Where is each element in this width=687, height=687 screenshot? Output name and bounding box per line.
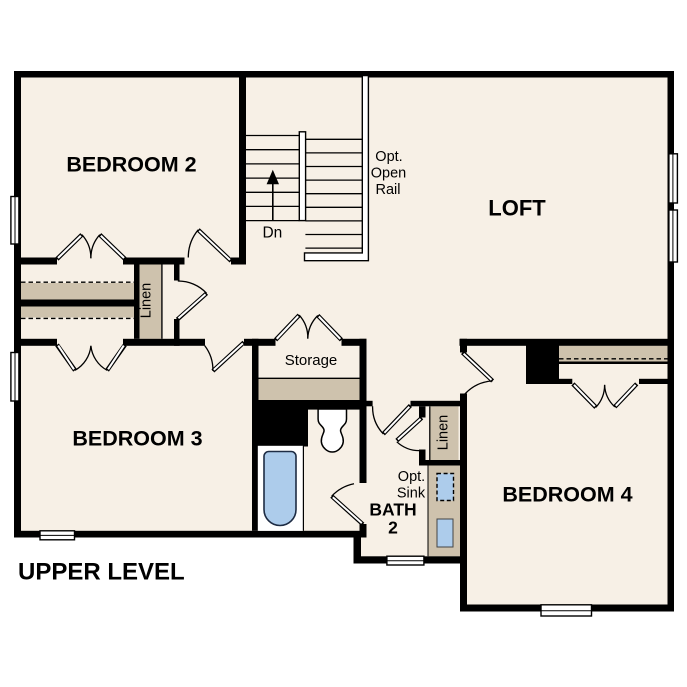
svg-text:BEDROOM 2: BEDROOM 2 (66, 152, 196, 176)
svg-text:Opt.: Opt. (375, 149, 402, 165)
svg-text:BEDROOM 4: BEDROOM 4 (502, 482, 632, 506)
svg-text:Dn: Dn (262, 225, 282, 242)
svg-text:LOFT: LOFT (488, 196, 546, 221)
svg-text:UPPER LEVEL: UPPER LEVEL (18, 559, 185, 586)
svg-text:Storage: Storage (285, 352, 338, 369)
svg-text:Sink: Sink (397, 485, 426, 501)
svg-text:Linen: Linen (436, 415, 452, 450)
svg-text:Linen: Linen (139, 283, 155, 318)
svg-text:BEDROOM 3: BEDROOM 3 (72, 426, 202, 450)
svg-text:Rail: Rail (376, 182, 401, 198)
svg-text:Open: Open (371, 165, 406, 181)
svg-text:Opt.: Opt. (398, 469, 425, 485)
svg-text:BATH: BATH (369, 499, 416, 519)
svg-text:2: 2 (388, 517, 398, 537)
